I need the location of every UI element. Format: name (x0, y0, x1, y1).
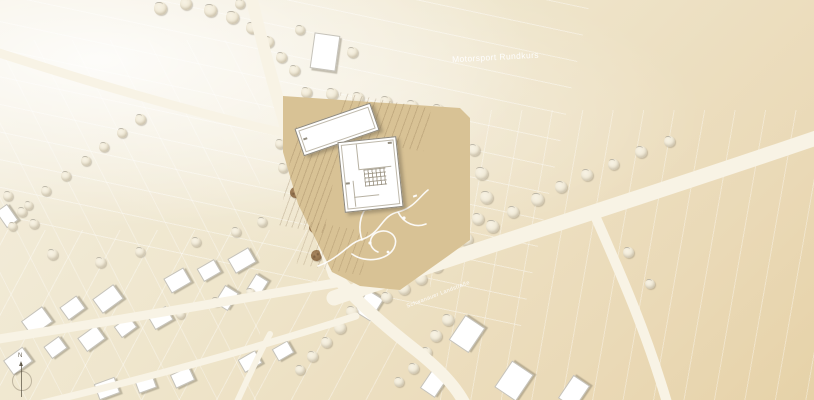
site-plan: Motorsport Rundkurs Schwanauer Landstraß… (0, 0, 814, 400)
bench (413, 194, 417, 197)
main-building (337, 136, 403, 213)
north-arrow-circle (12, 371, 32, 391)
building-floorplan-grid (363, 167, 387, 187)
north-arrow-needle (21, 363, 22, 397)
play-equipment (368, 241, 371, 244)
footpath (360, 208, 366, 240)
footpath (398, 212, 426, 226)
north-arrow: N (6, 356, 40, 400)
landscape-paths (0, 0, 814, 400)
elevation-mark (346, 182, 350, 184)
north-arrow-tip (19, 361, 23, 366)
play-equipment (387, 251, 390, 254)
elevation-mark (388, 142, 392, 144)
footpath-loop (352, 231, 396, 260)
play-equipment (402, 216, 405, 219)
north-label: N (18, 353, 22, 359)
